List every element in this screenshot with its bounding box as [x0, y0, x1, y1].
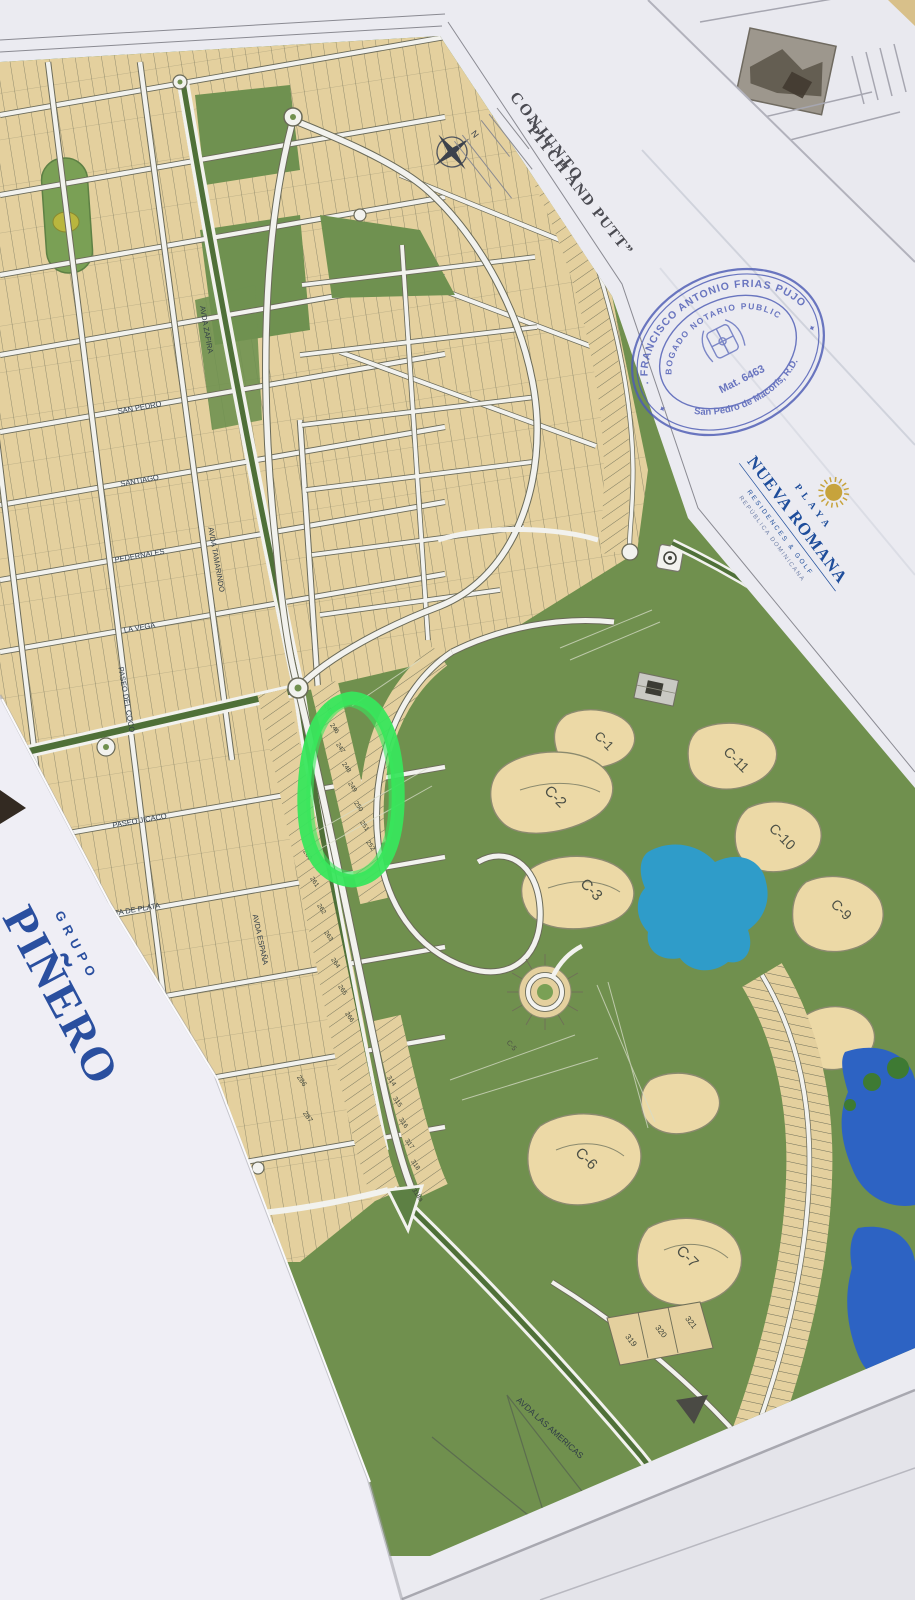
photo-of-site-plan-documents: SAN PEDRO SANTIAGO PEDERNALES LA VEGA PA… — [0, 0, 915, 1600]
